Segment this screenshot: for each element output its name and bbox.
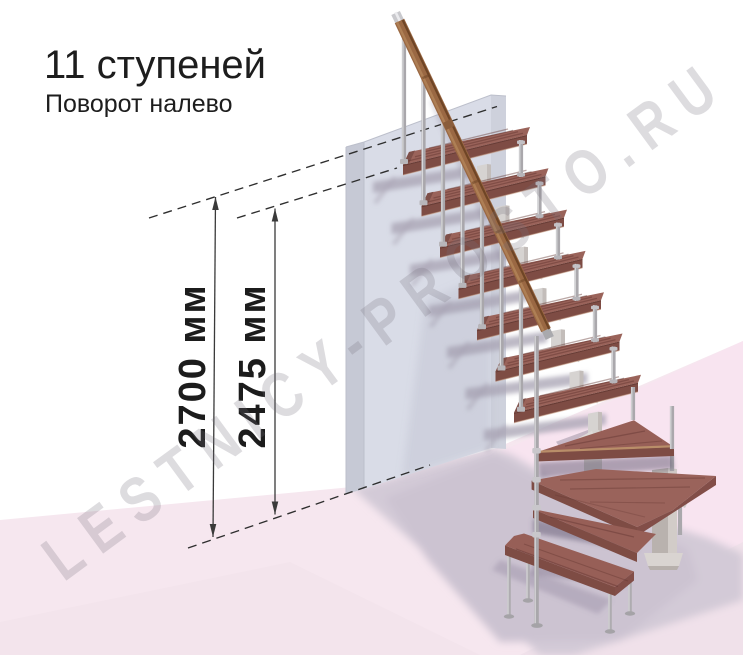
svg-text:11 ступеней: 11 ступеней — [44, 43, 266, 87]
svg-text:Поворот налево: Поворот налево — [45, 90, 233, 118]
